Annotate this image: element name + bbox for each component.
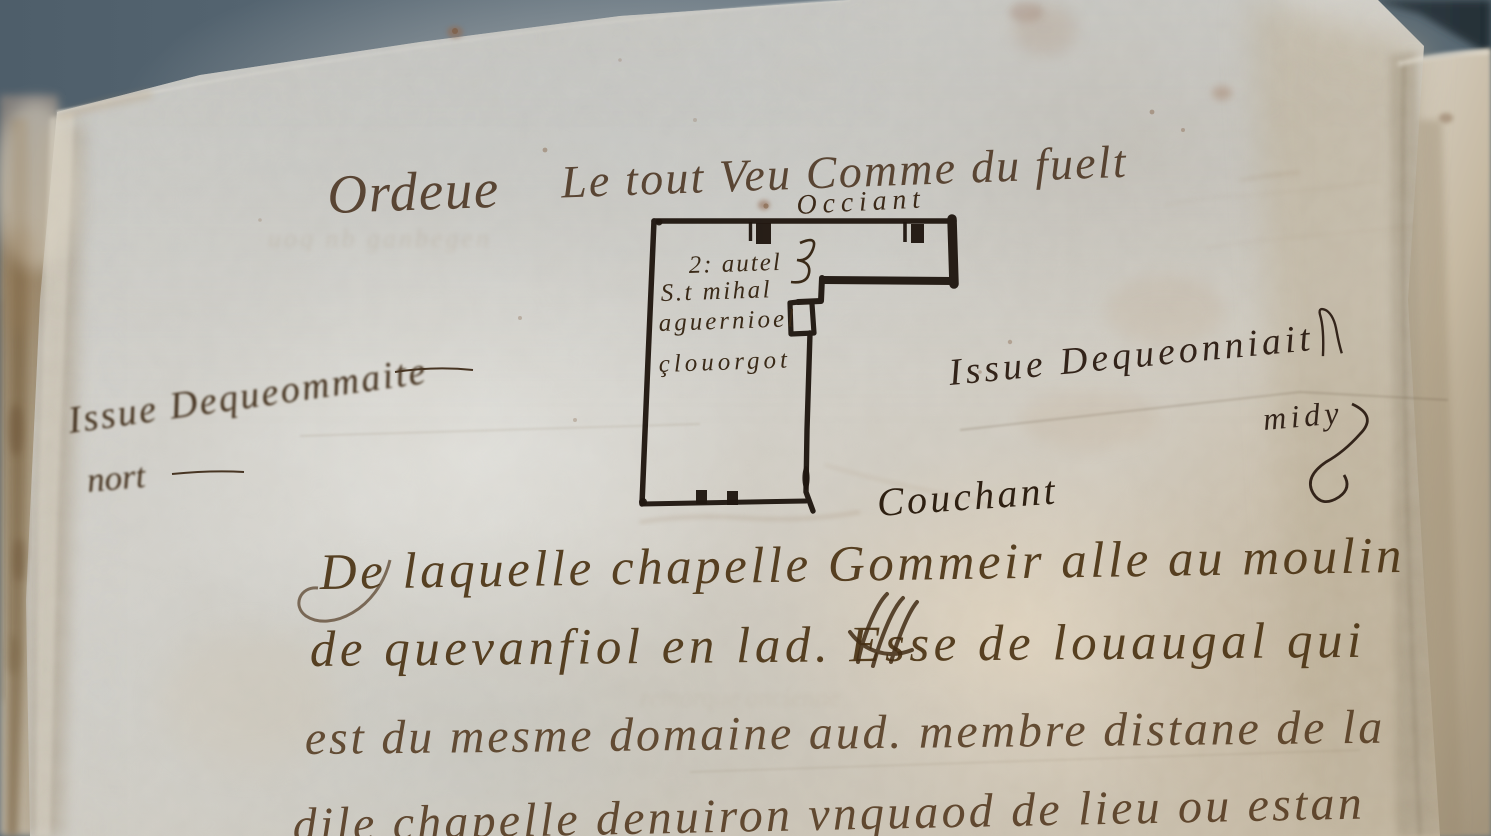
svg-text:çlouorgot: çlouorgot	[658, 346, 791, 378]
svg-text:nort: nort	[85, 456, 148, 500]
svg-text:est du mesme domaine aud. memb: est du mesme domaine aud. membre distane…	[305, 701, 1386, 765]
svg-text:de quevanfiol en lad. Esse de: de quevanfiol en lad. Esse de louaugal q…	[310, 613, 1366, 678]
svg-text:S.t mihal: S.t mihal	[660, 276, 772, 307]
svg-text:uoq nb ganbegen: uoq nb ganbegen	[268, 224, 492, 253]
svg-text:Ordeue: Ordeue	[326, 158, 501, 225]
svg-text:midy: midy	[1261, 394, 1344, 437]
svg-text:2: autel: 2: autel	[688, 249, 782, 279]
svg-text:aguernioel: aguernioel	[658, 305, 797, 337]
